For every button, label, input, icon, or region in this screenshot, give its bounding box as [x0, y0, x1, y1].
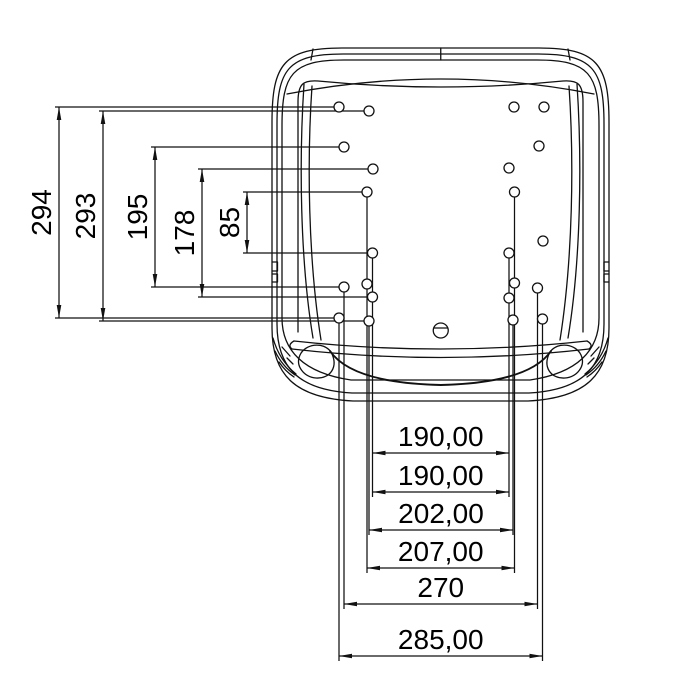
mounting-hole	[334, 102, 344, 112]
arrowhead-right	[530, 654, 543, 659]
arrowhead-up	[153, 147, 158, 160]
mounting-hole	[538, 236, 548, 246]
mounting-hole	[364, 106, 374, 116]
front-lip-end-left	[290, 341, 294, 349]
arrowhead-right	[502, 566, 515, 571]
arrowhead-left	[339, 654, 352, 659]
dimension-lines-group: 29429319517885190,00190,00202,00207,0027…	[26, 107, 543, 658]
arrowhead-left	[373, 490, 386, 495]
mounting-hole	[508, 315, 518, 325]
dimension-label: 85	[214, 207, 245, 238]
dimension-label: 190,00	[398, 421, 484, 452]
arrowhead-down	[153, 274, 158, 287]
dimension-label: 294	[26, 189, 57, 236]
mounting-hole	[362, 187, 372, 197]
mounting-hole	[339, 142, 349, 152]
seat-outline-middle	[277, 54, 604, 393]
arrowhead-up	[101, 111, 106, 124]
arrowhead-down	[101, 308, 106, 321]
arrowhead-up	[200, 169, 205, 182]
mounting-hole	[362, 279, 372, 289]
side-channel-right-outer	[568, 84, 580, 338]
corner-pocket-right	[547, 345, 582, 378]
mounting-hole	[368, 248, 378, 258]
arrowhead-right	[496, 490, 509, 495]
seat-inner-panel	[298, 81, 583, 332]
arrowhead-left	[373, 451, 386, 456]
arrowhead-left	[344, 602, 357, 607]
mounting-hole	[510, 187, 520, 197]
arrowhead-right	[496, 451, 509, 456]
mounting-hole	[534, 141, 544, 151]
dimension-label: 190,00	[398, 460, 484, 491]
seat-outline-group	[272, 48, 609, 401]
arrowhead-left	[367, 566, 380, 571]
corner-pocket-left	[299, 345, 334, 378]
seat-drawing-canvas: 29429319517885190,00190,00202,00207,0027…	[0, 0, 700, 700]
dimension-label: 270	[417, 572, 464, 603]
mounting-hole	[509, 102, 519, 112]
center-screw-hole	[433, 323, 448, 338]
dimension-label: 285,00	[398, 624, 484, 655]
mounting-hole	[538, 314, 548, 324]
arrowhead-right	[500, 528, 513, 533]
arrowhead-left	[369, 528, 382, 533]
arrowhead-down	[245, 240, 250, 253]
arrowhead-up	[245, 192, 250, 205]
mounting-hole	[504, 248, 514, 258]
mounting-hole	[334, 313, 344, 323]
mounting-hole	[510, 278, 520, 288]
dimension-label: 178	[169, 210, 200, 257]
dimension-label: 293	[70, 193, 101, 240]
side-channel-left-outer	[301, 84, 313, 338]
mounting-hole	[368, 164, 378, 174]
side-channel-left-inner	[309, 86, 321, 340]
mounting-hole	[368, 292, 378, 302]
dimension-label: 202,00	[398, 498, 484, 529]
mounting-hole	[504, 293, 514, 303]
mounting-hole	[539, 102, 549, 112]
mounting-hole	[504, 163, 514, 173]
front-lip-end-right	[587, 341, 591, 349]
mounting-hole	[364, 316, 374, 326]
mounting-holes-group	[334, 102, 549, 326]
arrowhead-down	[200, 284, 205, 297]
arrowhead-up	[57, 107, 62, 120]
technical-drawing-page: 29429319517885190,00190,00202,00207,0027…	[0, 0, 700, 700]
front-lip-lower	[292, 349, 589, 358]
arrowhead-down	[57, 305, 62, 318]
arrowhead-right	[525, 602, 538, 607]
edge-clips	[273, 262, 610, 282]
dimension-label: 207,00	[398, 536, 484, 567]
seat-outline-outer	[272, 48, 609, 401]
mounting-hole	[533, 283, 543, 293]
mounting-hole	[339, 282, 349, 292]
center-screw-group	[433, 323, 448, 338]
dimension-label: 195	[122, 194, 153, 241]
side-channel-right-inner	[560, 86, 572, 340]
